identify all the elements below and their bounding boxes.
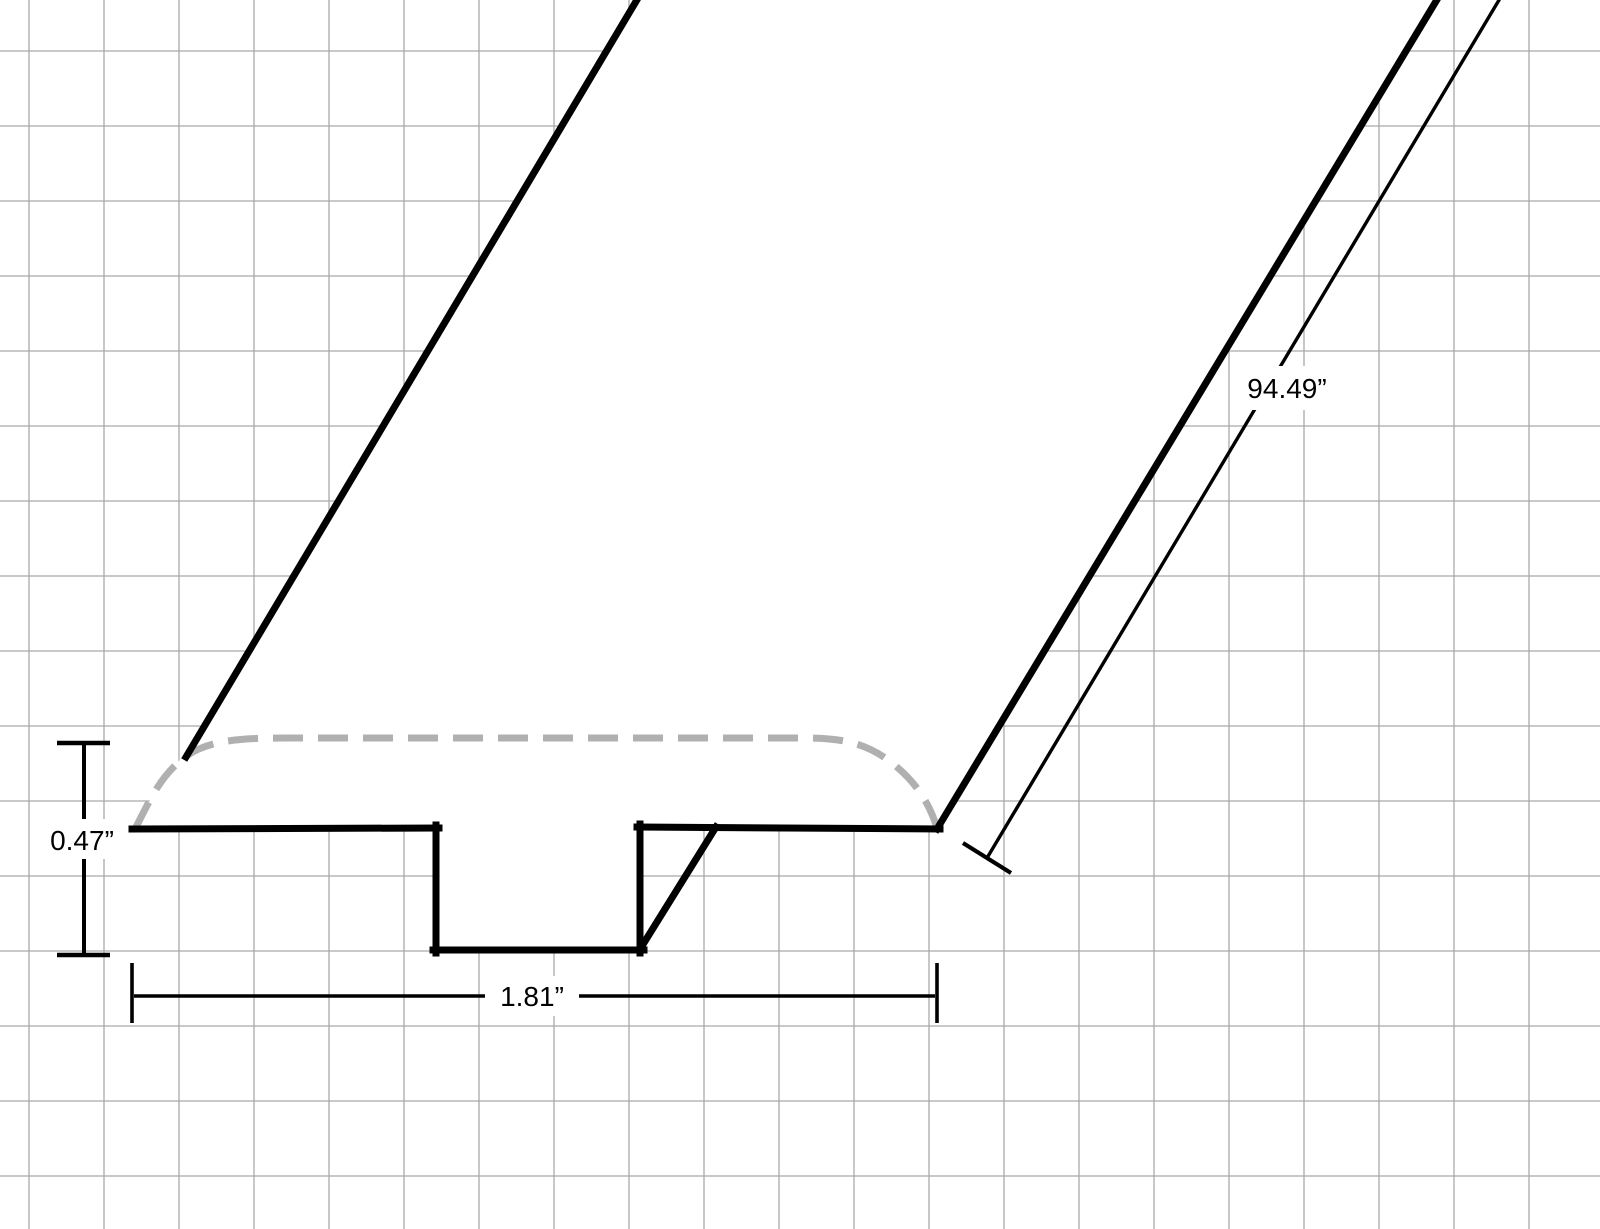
dimension-width: 1.81” xyxy=(132,963,937,1023)
dimension-width-label: 1.81” xyxy=(500,981,564,1012)
t-molding-profile-diagram: 0.47” 1.81” 94.49” xyxy=(0,0,1600,1229)
dimension-length-label: 94.49” xyxy=(1247,373,1326,404)
top-edge-right xyxy=(637,827,940,829)
molding-body-silhouette xyxy=(135,0,1444,950)
technical-drawing-canvas: 0.47” 1.81” 94.49” xyxy=(0,0,1600,1229)
dimension-height: 0.47” xyxy=(42,743,122,955)
dimension-height-label: 0.47” xyxy=(50,825,114,856)
top-edge-left xyxy=(132,828,439,829)
groove-depth-diagonal xyxy=(642,827,716,946)
